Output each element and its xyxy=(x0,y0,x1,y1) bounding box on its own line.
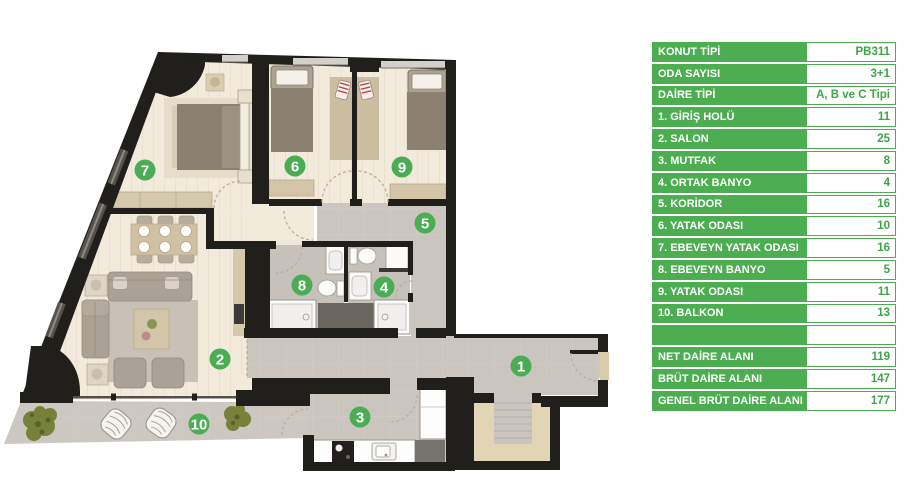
svg-text:5: 5 xyxy=(421,216,429,233)
svg-text:7: 7 xyxy=(141,163,149,180)
svg-text:3: 3 xyxy=(356,410,364,427)
svg-text:6: 6 xyxy=(291,159,299,176)
svg-text:10: 10 xyxy=(191,417,208,434)
svg-text:9: 9 xyxy=(398,160,406,177)
svg-text:8: 8 xyxy=(298,278,306,295)
svg-text:4: 4 xyxy=(380,280,389,297)
svg-text:1: 1 xyxy=(517,359,525,376)
svg-text:2: 2 xyxy=(216,352,224,369)
